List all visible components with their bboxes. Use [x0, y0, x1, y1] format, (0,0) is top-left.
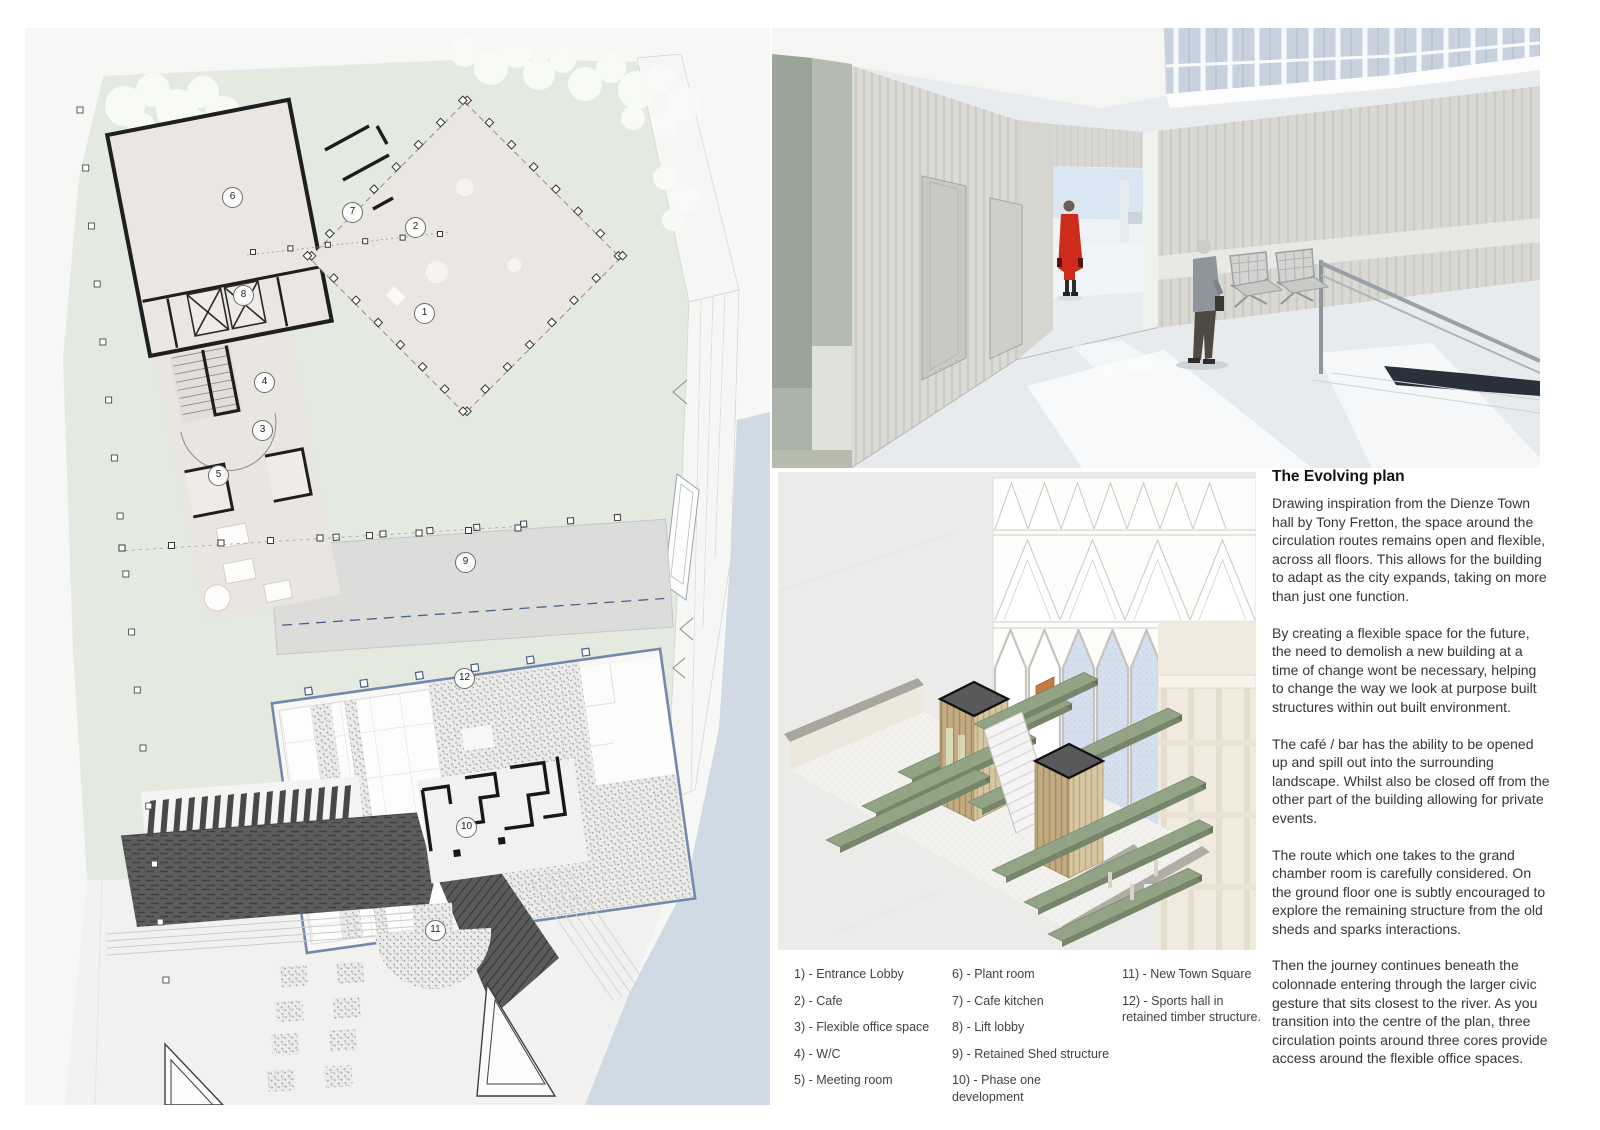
legend-item: 9) - Retained Shed structure [952, 1046, 1112, 1063]
plan-number-badge: 9 [455, 552, 476, 573]
plan-number-badge: 2 [405, 217, 426, 238]
article-body: Drawing inspiration from the Dienze Town… [1272, 494, 1550, 1068]
article-paragraph: By creating a flexible space for the fut… [1272, 624, 1550, 717]
legend-item: 12) - Sports hall in retained timber str… [1122, 993, 1264, 1026]
legend-item: 4) - W/C [794, 1046, 944, 1063]
legend-item: 5) - Meeting room [794, 1072, 944, 1089]
plan-number-badge: 4 [254, 372, 275, 393]
ground-floor-site-plan: 123456789101112 [25, 28, 770, 1105]
legend-column: 1) - Entrance Lobby2) - Cafe3) - Flexibl… [794, 966, 944, 1099]
plan-number-badge: 10 [456, 817, 477, 838]
article-paragraph: The route which one takes to the grand c… [1272, 846, 1550, 939]
legend-column: 6) - Plant room7) - Cafe kitchen8) - Lif… [952, 966, 1112, 1115]
legend-item: 6) - Plant room [952, 966, 1112, 983]
legend-item: 8) - Lift lobby [952, 1019, 1112, 1036]
plan-number-badge: 1 [414, 303, 435, 324]
door-jamb-pillar [1143, 131, 1158, 330]
site-plan-drawing [25, 28, 770, 1105]
plan-number-badge: 6 [222, 187, 243, 208]
legend-item: 2) - Cafe [794, 993, 944, 1010]
axon-drawing [778, 472, 1256, 950]
article-paragraph: The café / bar has the ability to be ope… [1272, 735, 1550, 828]
plan-number-badge: 11 [425, 920, 446, 941]
plan-number-badge: 7 [342, 202, 363, 223]
legend-item: 1) - Entrance Lobby [794, 966, 944, 983]
presentation-board: 123456789101112 [0, 0, 1600, 1130]
concrete-pillar [772, 54, 852, 468]
interior-render-image [772, 28, 1540, 468]
plant-room [107, 100, 332, 356]
plan-number-badge: 8 [233, 285, 254, 306]
article: The Evolving plan Drawing inspiration fr… [1272, 468, 1550, 1086]
legend-item: 3) - Flexible office space [794, 1019, 944, 1036]
plan-legend: 1) - Entrance Lobby2) - Cafe3) - Flexibl… [778, 956, 1256, 1106]
article-paragraph: Drawing inspiration from the Dienze Town… [1272, 494, 1550, 606]
plan-number-badge: 3 [252, 420, 273, 441]
interior-render [772, 28, 1540, 468]
legend-item: 10) - Phase one development [952, 1072, 1112, 1105]
legend-column: 11) - New Town Square12) - Sports hall i… [1122, 966, 1264, 1036]
axonometric-massing-drawing [778, 472, 1256, 950]
legend-item: 7) - Cafe kitchen [952, 993, 1112, 1010]
legend-item: 11) - New Town Square [1122, 966, 1264, 983]
plan-number-badge: 12 [454, 668, 475, 689]
article-paragraph: Then the journey continues beneath the c… [1272, 956, 1550, 1068]
article-title: The Evolving plan [1272, 468, 1550, 486]
plan-number-badge: 5 [208, 465, 229, 486]
